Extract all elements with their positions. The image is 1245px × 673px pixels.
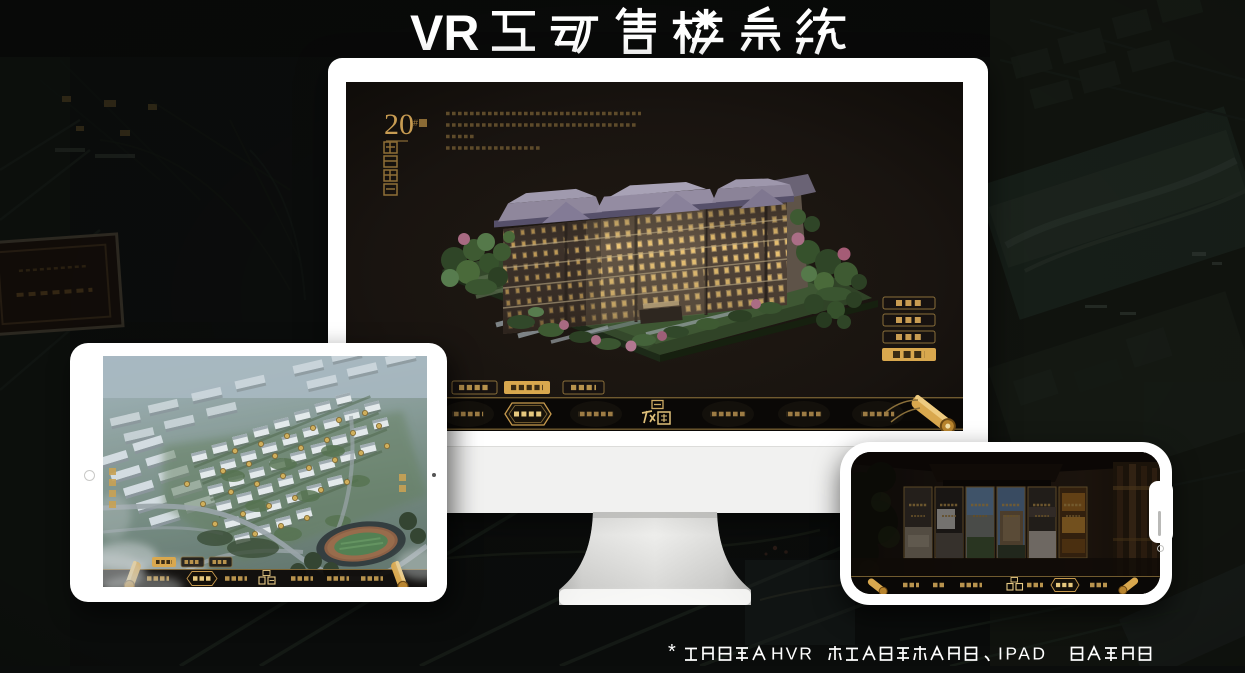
svg-text:20: 20 <box>384 108 414 141</box>
svg-text:IPAD: IPAD <box>998 644 1048 664</box>
svg-text:#: # <box>413 118 418 128</box>
svg-text:*: * <box>668 643 676 663</box>
svg-text:HVR: HVR <box>771 644 814 664</box>
svg-text:VR: VR <box>410 5 479 57</box>
